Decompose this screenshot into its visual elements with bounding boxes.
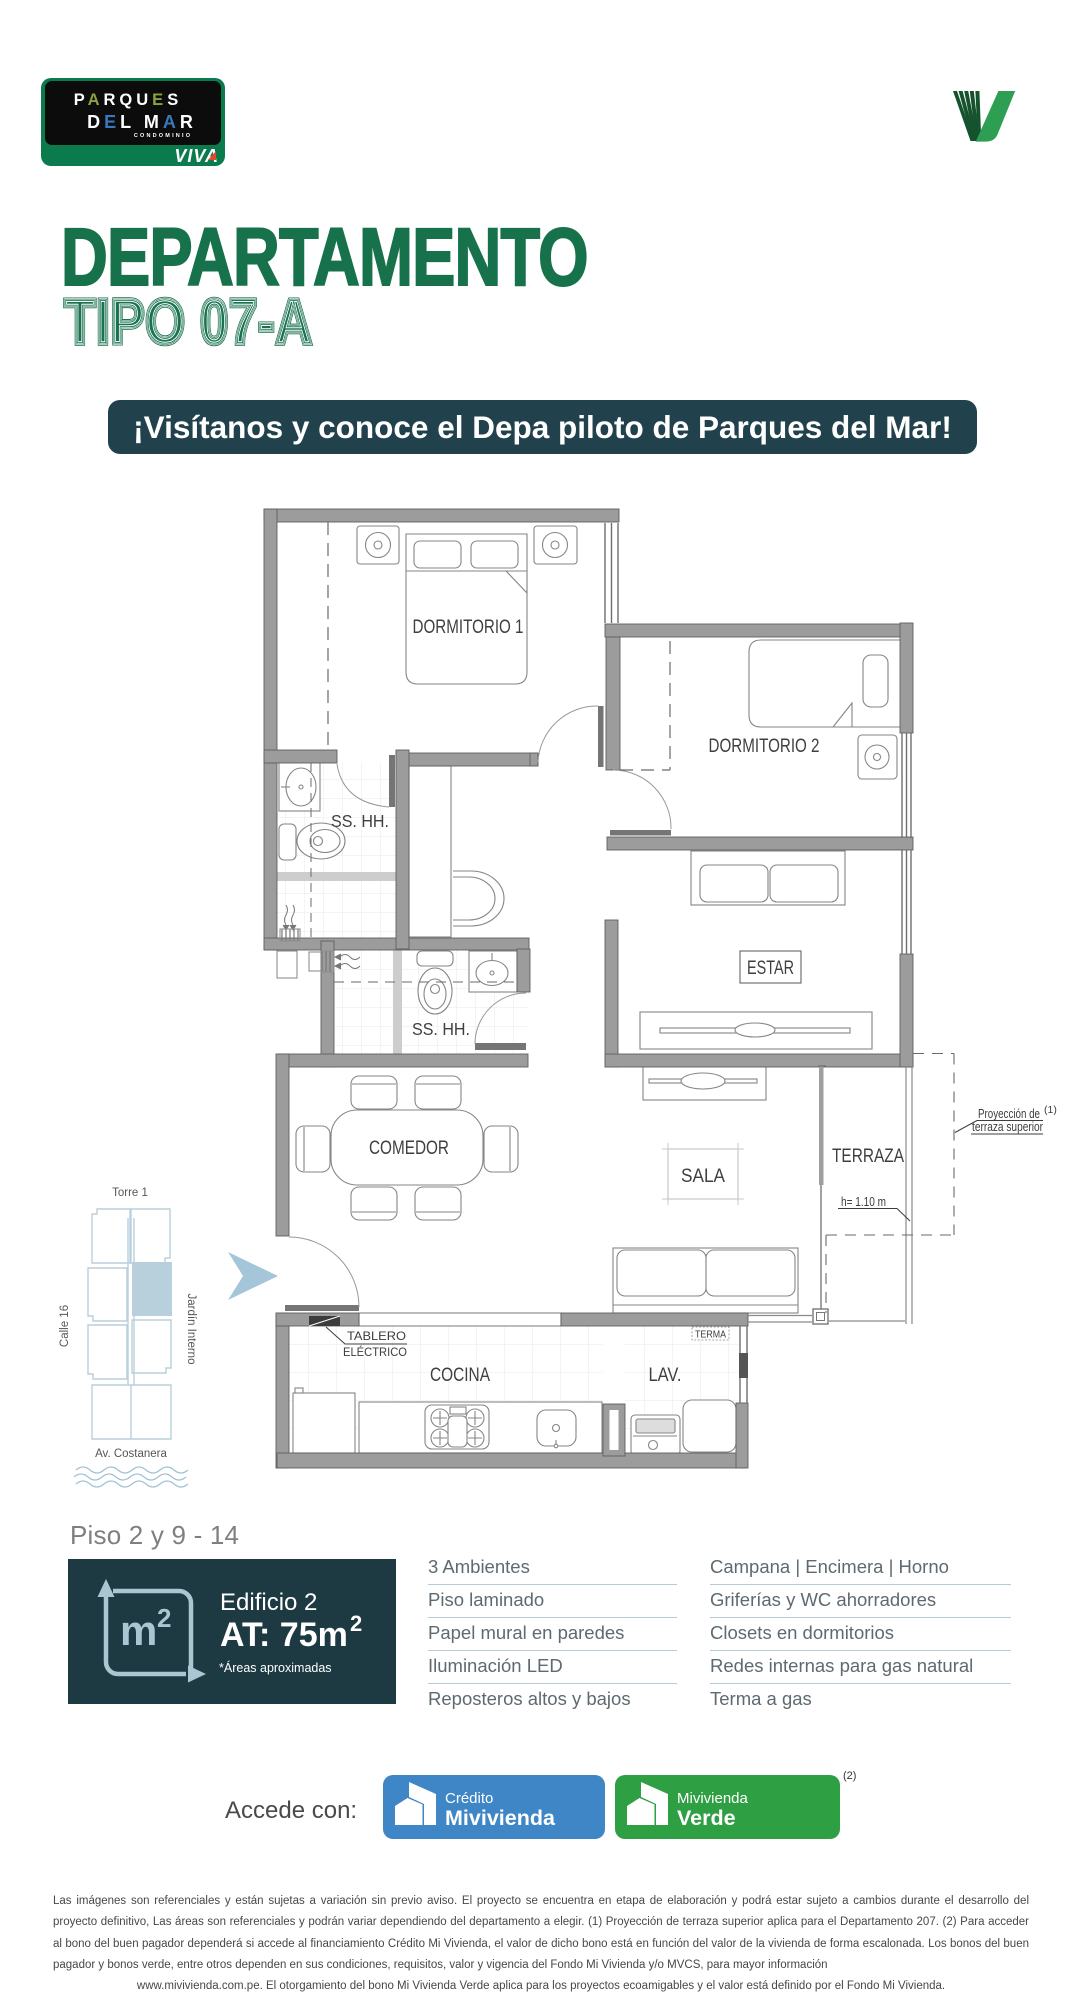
svg-text:Torre 1: Torre 1 bbox=[112, 1187, 148, 1199]
svg-text:Crédito: Crédito bbox=[445, 1790, 493, 1807]
svg-text:h= 1.10 m: h= 1.10 m bbox=[841, 1195, 886, 1209]
svg-text:Calle 16: Calle 16 bbox=[59, 1305, 71, 1347]
svg-text:ELÉCTRICO: ELÉCTRICO bbox=[343, 1346, 407, 1359]
svg-text:(1): (1) bbox=[1044, 1104, 1057, 1116]
svg-text:2: 2 bbox=[350, 1611, 362, 1636]
svg-text:m: m bbox=[120, 1607, 157, 1654]
svg-text:Verde: Verde bbox=[677, 1806, 736, 1830]
svg-text:Mivivienda: Mivivienda bbox=[445, 1806, 556, 1830]
svg-text:DORMITORIO 1: DORMITORIO 1 bbox=[413, 617, 524, 638]
svg-text:COCINA: COCINA bbox=[430, 1365, 490, 1386]
svg-text:TERMA: TERMA bbox=[695, 1330, 726, 1341]
svg-text:AT: 75m: AT: 75m bbox=[220, 1616, 348, 1654]
svg-text:TERRAZA: TERRAZA bbox=[832, 1146, 904, 1167]
svg-text:Jardín Interno: Jardín Interno bbox=[185, 1294, 197, 1365]
svg-text:terraza superior: terraza superior bbox=[972, 1120, 1043, 1134]
svg-text:COMEDOR: COMEDOR bbox=[369, 1138, 449, 1159]
svg-text:TABLERO: TABLERO bbox=[347, 1331, 406, 1343]
svg-text:LAV.: LAV. bbox=[649, 1365, 682, 1386]
svg-text:SS. HH.: SS. HH. bbox=[331, 811, 389, 831]
svg-text:ESTAR: ESTAR bbox=[747, 958, 794, 979]
svg-text:Proyección de: Proyección de bbox=[978, 1107, 1040, 1121]
svg-text:DORMITORIO 2: DORMITORIO 2 bbox=[709, 736, 820, 757]
svg-text:SALA: SALA bbox=[681, 1166, 725, 1187]
svg-text:Edificio 2: Edificio 2 bbox=[220, 1589, 317, 1616]
svg-text:Av. Costanera: Av. Costanera bbox=[95, 1448, 167, 1460]
svg-text:2: 2 bbox=[157, 1603, 171, 1633]
svg-text:*Áreas aproximadas: *Áreas aproximadas bbox=[219, 1660, 332, 1675]
svg-text:Mivivienda: Mivivienda bbox=[677, 1790, 749, 1807]
svg-text:SS. HH.: SS. HH. bbox=[412, 1019, 470, 1039]
